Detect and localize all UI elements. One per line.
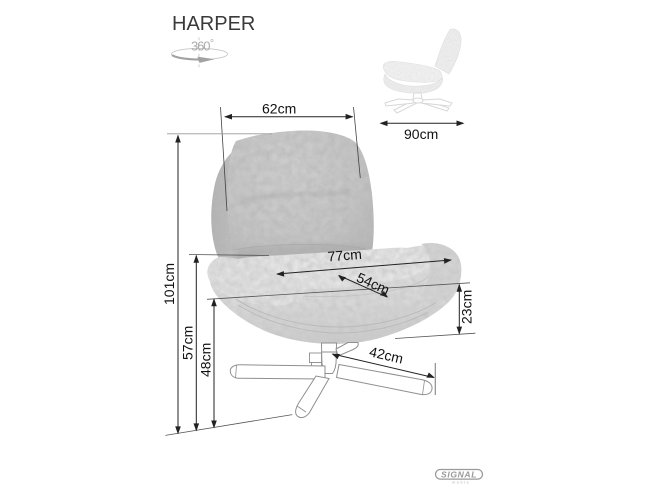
svg-text:57cm: 57cm — [180, 326, 196, 360]
svg-text:23cm: 23cm — [459, 290, 475, 324]
svg-text:360: 360 — [191, 39, 211, 54]
svg-text:101cm: 101cm — [161, 263, 177, 305]
svg-text:meble: meble — [452, 480, 470, 485]
svg-text:62cm: 62cm — [262, 101, 296, 117]
svg-text:°: ° — [210, 39, 214, 50]
svg-text:SIGNAL: SIGNAL — [441, 470, 477, 480]
svg-text:77cm: 77cm — [327, 246, 362, 265]
svg-text:HARPER: HARPER — [172, 13, 255, 35]
svg-text:90cm: 90cm — [404, 126, 438, 142]
svg-text:48cm: 48cm — [198, 343, 214, 377]
